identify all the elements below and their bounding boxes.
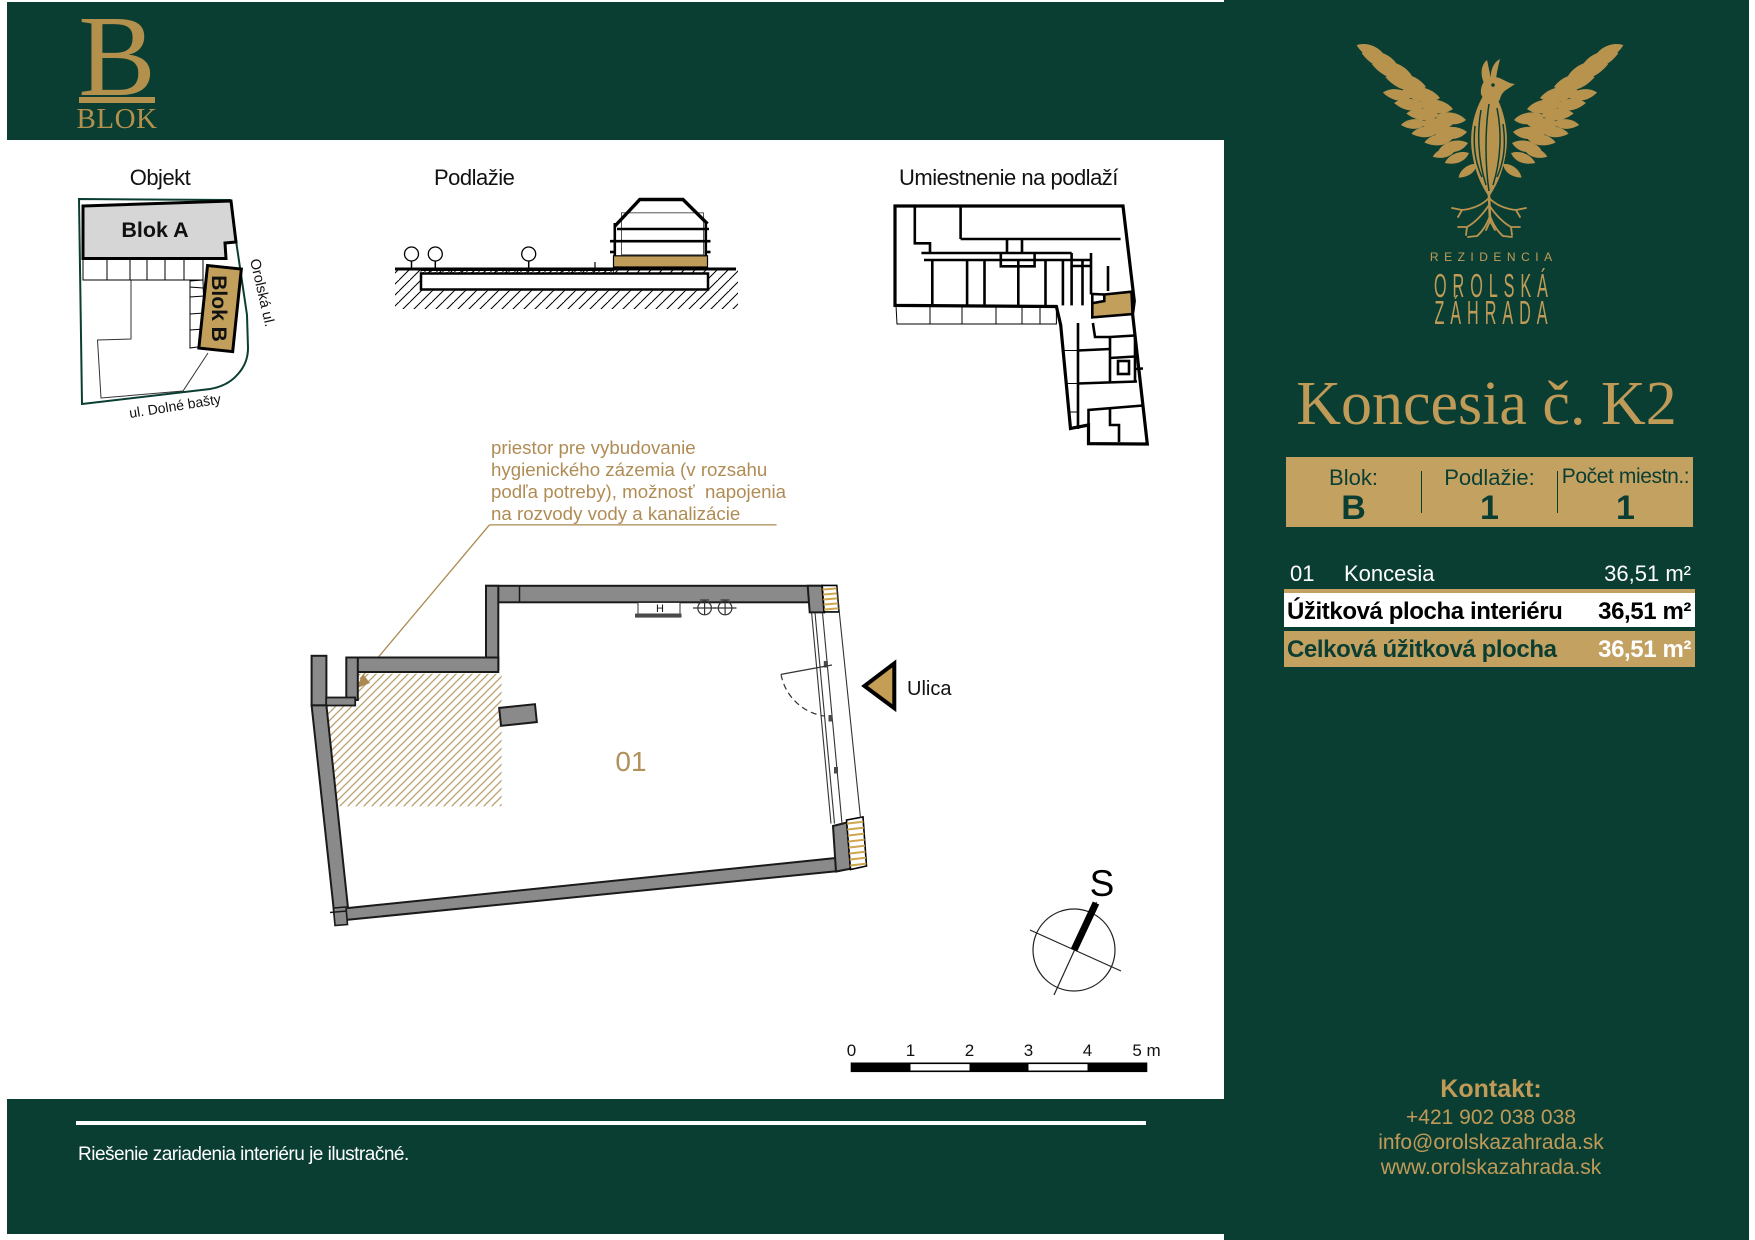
- svg-text:2: 2: [965, 1041, 974, 1060]
- svg-text:S: S: [1090, 863, 1115, 904]
- svg-text:4: 4: [1083, 1041, 1092, 1060]
- svg-text:ul. Dolné bašty: ul. Dolné bašty: [128, 391, 222, 421]
- svg-text:Blok B: Blok B: [207, 275, 230, 342]
- svg-text:Orolská ul.: Orolská ul.: [246, 257, 277, 328]
- svg-text:5 m: 5 m: [1132, 1041, 1160, 1060]
- svg-text:3: 3: [1024, 1041, 1033, 1060]
- svg-text:H: H: [656, 603, 664, 615]
- svg-text:0: 0: [847, 1041, 856, 1060]
- svg-text:Blok A: Blok A: [121, 218, 188, 242]
- svg-text:01: 01: [615, 746, 646, 777]
- svg-text:1: 1: [906, 1041, 915, 1060]
